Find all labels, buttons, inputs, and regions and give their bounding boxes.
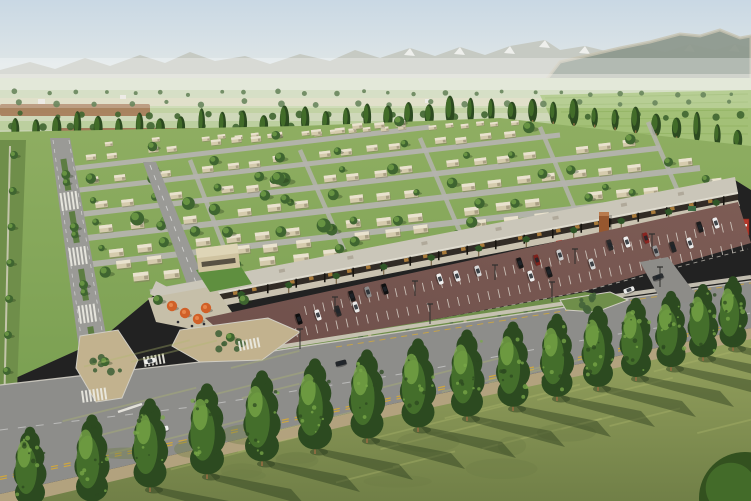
- house: [267, 203, 282, 213]
- house: [183, 215, 198, 225]
- house: [238, 208, 253, 218]
- house: [147, 255, 163, 266]
- house: [255, 231, 271, 242]
- house: [86, 154, 97, 161]
- house: [446, 159, 459, 168]
- house: [202, 136, 211, 142]
- house: [497, 155, 510, 164]
- house: [324, 174, 337, 183]
- house: [385, 228, 401, 239]
- house: [455, 137, 467, 145]
- house: [211, 139, 222, 146]
- render-canvas: [0, 0, 751, 501]
- aerial-site-render: [0, 0, 751, 501]
- house: [163, 269, 180, 281]
- house: [319, 150, 331, 158]
- house: [523, 151, 536, 160]
- house: [114, 174, 126, 182]
- house: [116, 259, 132, 270]
- house: [504, 131, 516, 139]
- house: [231, 136, 242, 143]
- house: [376, 217, 392, 228]
- house: [109, 248, 125, 259]
- house: [251, 136, 262, 143]
- house: [376, 192, 391, 202]
- house: [170, 191, 183, 200]
- house: [374, 170, 387, 179]
- house: [474, 157, 487, 166]
- house: [202, 165, 214, 173]
- house: [137, 243, 153, 254]
- house: [363, 127, 372, 133]
- house: [476, 121, 485, 127]
- house: [598, 167, 613, 177]
- house: [246, 185, 259, 194]
- house: [400, 165, 413, 174]
- house: [352, 123, 363, 130]
- house: [627, 164, 642, 174]
- house: [107, 153, 118, 160]
- house: [335, 127, 346, 134]
- house: [350, 194, 365, 204]
- house: [263, 243, 279, 254]
- house: [511, 120, 520, 126]
- house: [490, 122, 499, 128]
- house: [576, 146, 589, 155]
- house: [166, 146, 177, 153]
- house: [445, 123, 454, 129]
- house: [105, 141, 114, 147]
- house: [678, 158, 693, 168]
- house: [487, 179, 502, 189]
- house: [295, 200, 310, 210]
- house: [517, 175, 532, 185]
- house: [121, 199, 134, 208]
- house: [249, 160, 261, 168]
- house: [217, 134, 226, 140]
- house: [133, 271, 150, 283]
- house: [598, 142, 611, 151]
- house: [461, 183, 476, 193]
- house: [480, 133, 492, 141]
- house: [346, 173, 359, 182]
- house: [296, 239, 312, 250]
- house: [408, 213, 424, 224]
- house: [366, 144, 378, 152]
- house: [525, 198, 541, 209]
- house: [389, 143, 401, 151]
- house: [428, 125, 437, 131]
- house: [99, 224, 114, 234]
- house: [496, 202, 512, 213]
- house: [311, 129, 322, 136]
- house: [461, 124, 470, 130]
- corner-building: [196, 244, 241, 273]
- house: [413, 224, 429, 235]
- house: [301, 131, 310, 137]
- house: [259, 256, 276, 268]
- house: [195, 237, 211, 248]
- house: [374, 122, 385, 129]
- house: [228, 162, 240, 170]
- house: [435, 137, 447, 145]
